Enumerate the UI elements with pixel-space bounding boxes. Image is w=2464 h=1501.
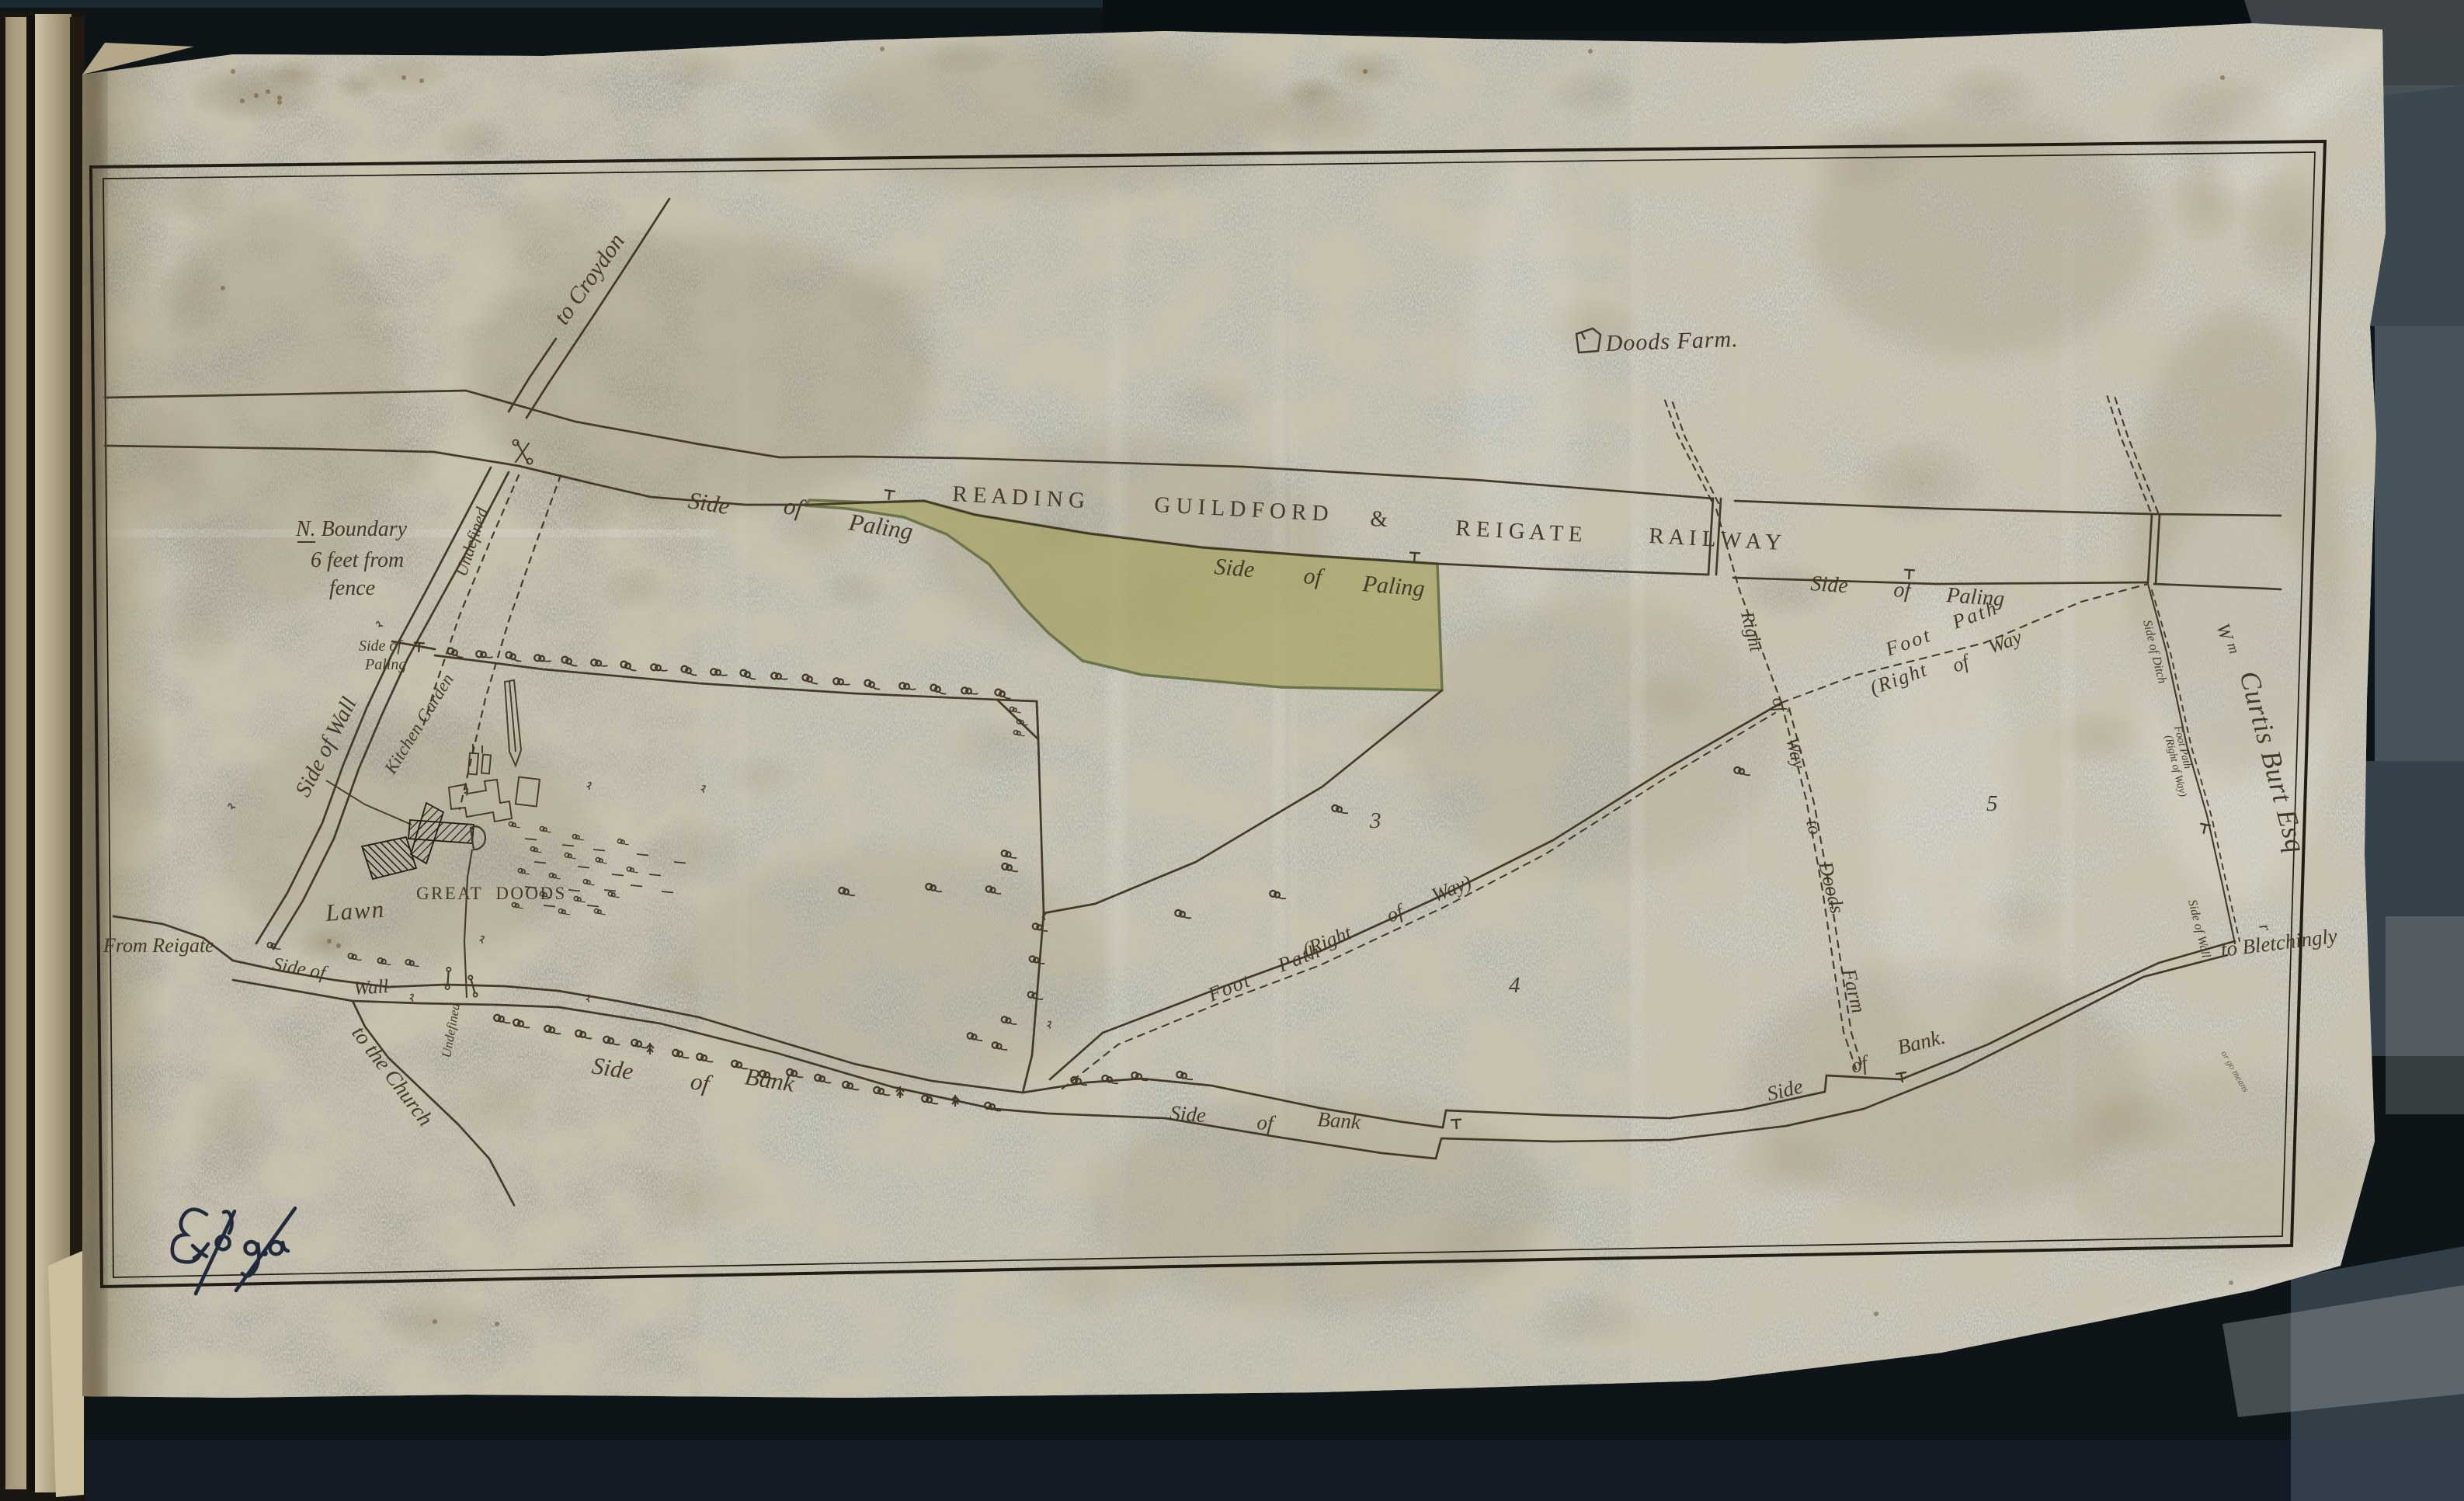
svg-text:&: & (1370, 506, 1389, 532)
svg-text:Side: Side (1169, 1101, 1207, 1127)
svg-text:Side: Side (1810, 572, 1849, 598)
svg-text:6 feet from: 6 feet from (311, 548, 404, 572)
svg-text:Lawn: Lawn (324, 895, 386, 926)
svg-text:Side of: Side of (359, 638, 403, 655)
svg-text:Bank: Bank (1317, 1107, 1362, 1134)
svg-text:fence: fence (329, 576, 375, 600)
svg-text:Paling: Paling (364, 656, 406, 673)
svg-text:5: 5 (1986, 791, 1998, 816)
svg-text:Side: Side (1213, 554, 1255, 582)
svg-text:GREAT DOODS: GREAT DOODS (416, 884, 567, 903)
svg-text:4: 4 (1509, 973, 1520, 998)
svg-text:Paling: Paling (1361, 571, 1426, 602)
svg-text:3: 3 (1369, 808, 1381, 833)
svg-text:From Reigate: From Reigate (103, 934, 214, 957)
svg-text:Doods Farm.: Doods Farm. (1604, 326, 1739, 356)
svg-text:Wall: Wall (353, 976, 390, 999)
svg-text:N. Boundary: N. Boundary (295, 517, 408, 541)
